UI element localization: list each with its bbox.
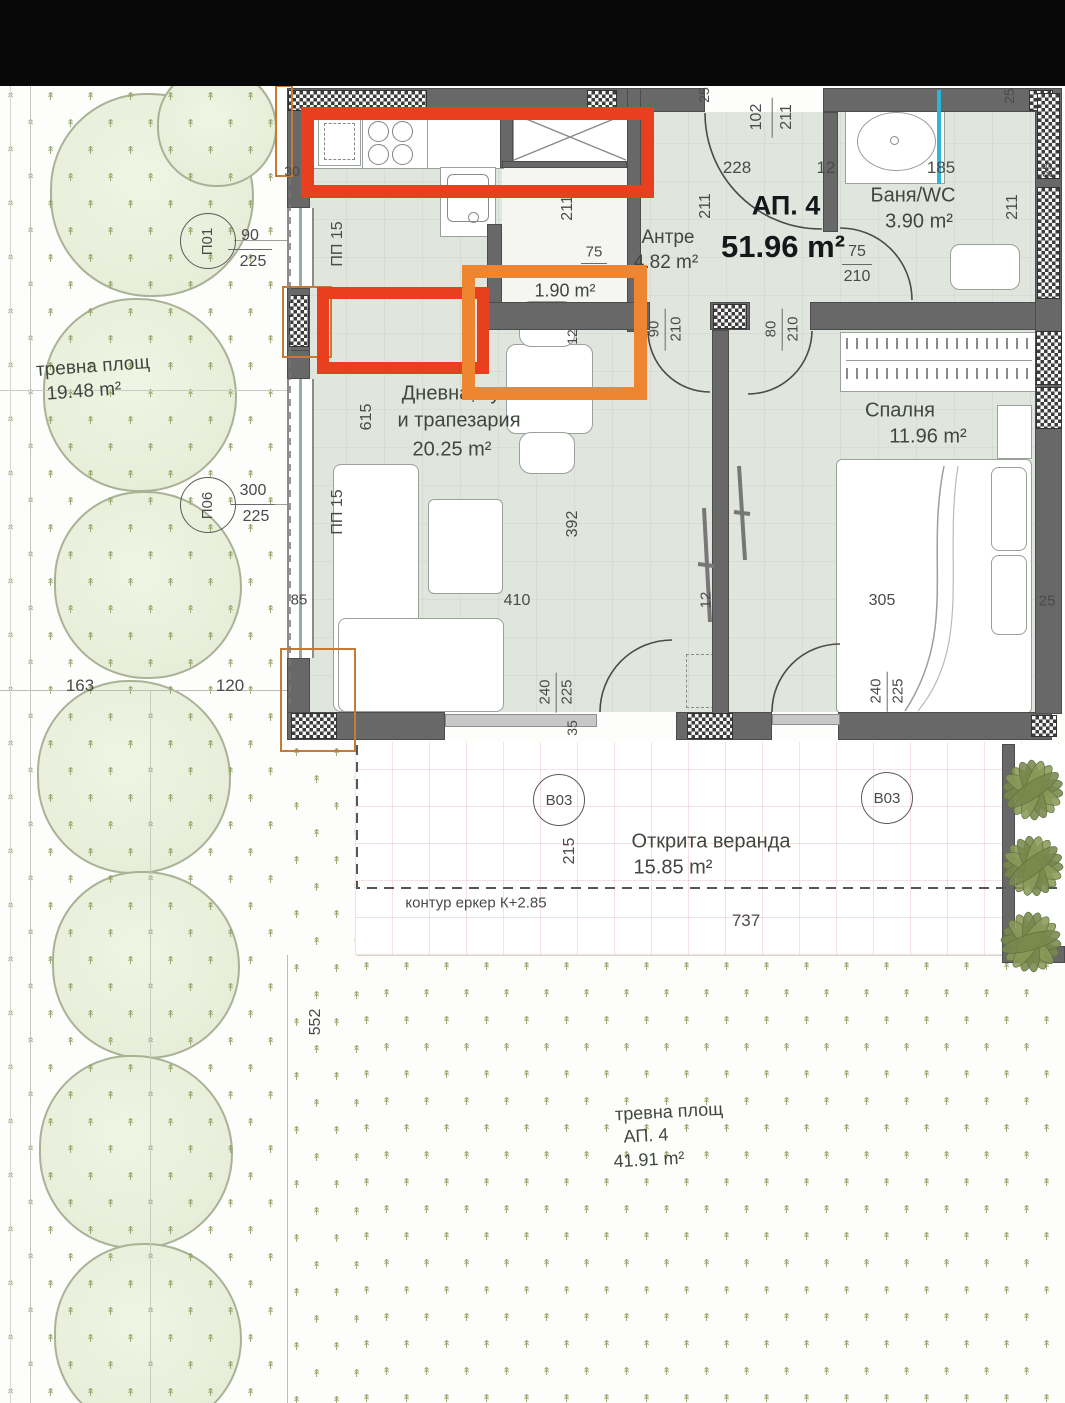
- tag-label: П06: [200, 491, 217, 518]
- dimension-label: 210: [785, 316, 802, 341]
- room-label: 41.91 m²: [613, 1148, 685, 1173]
- dimension-label: 25: [696, 87, 712, 103]
- dimension-label: 210: [844, 268, 871, 286]
- room-label: 15.85 m²: [634, 857, 713, 880]
- highlight-rect-red-kitchen: [301, 107, 654, 198]
- dimension-label: 211: [778, 104, 796, 130]
- door-arc-bedroom: [748, 331, 812, 394]
- dimension-label: контур еркер К+2.85: [405, 895, 546, 912]
- dimension-fraction-line: [842, 264, 872, 265]
- letterbox-top: [0, 0, 1065, 86]
- tag-label: В03: [874, 790, 901, 807]
- planter-plant-icon: [1000, 911, 1062, 973]
- room-label: 20.25 m²: [413, 439, 492, 462]
- planter-plant-icon: [1002, 759, 1064, 821]
- floor-plan-canvas: ↟↟↟↟↟↟↟↟↟↟↟↟↟↟↟↟↟↟↟↟↟↟↟↟↟↟↟↟↟↟↟↟↟↟↟↟↟↟↟↟…: [0, 0, 1065, 1403]
- dimension-label: 211: [559, 195, 577, 221]
- dimension-label: 305: [869, 592, 896, 610]
- door-arc-veranda-bedroom: [772, 644, 840, 712]
- tag-circle-П06: П06: [180, 477, 236, 533]
- dimension-label: 392: [564, 511, 582, 538]
- dimension-label: ПП 15: [329, 221, 347, 266]
- dimension-fraction-line: [228, 249, 272, 250]
- dimension-label: 25: [1001, 88, 1017, 104]
- dimension-label: 120: [216, 676, 244, 696]
- dimension-label: 102: [748, 104, 766, 131]
- room-label: Антре: [641, 227, 694, 249]
- dimension-label: 215: [561, 838, 579, 865]
- dimension-label: ПП 15: [329, 489, 347, 534]
- room-label: Открита веранда: [632, 831, 791, 854]
- dimension-label: 410: [504, 592, 531, 610]
- door-arc-veranda-living: [600, 640, 672, 712]
- dimension-fraction-line: [555, 673, 556, 713]
- dimension-label: 30: [284, 163, 300, 179]
- dimension-label: 240: [868, 678, 885, 703]
- dimension-label: 225: [559, 679, 576, 704]
- room-label: Спалня: [865, 400, 935, 423]
- dimension-label: 225: [890, 678, 907, 703]
- dimension-label: 35: [564, 720, 580, 736]
- tag-circle-В03: В03: [533, 774, 585, 826]
- dimension-label: 90: [646, 321, 663, 338]
- room-label: 11.96 m²: [889, 426, 966, 449]
- dimension-fraction-line: [781, 309, 782, 351]
- dimension-fraction-line: [771, 98, 772, 138]
- room-label: АП. 4: [623, 1124, 669, 1147]
- dimension-label: 25: [1039, 593, 1056, 610]
- dimension-label: 211: [1004, 194, 1022, 220]
- dimension-label: 228: [723, 158, 751, 178]
- dimension-label: 240: [537, 679, 554, 704]
- dimension-label: 552: [307, 1009, 325, 1036]
- dimension-label: 225: [240, 253, 267, 271]
- dimension-label: 737: [732, 911, 760, 931]
- dimension-label: 300: [240, 482, 267, 500]
- tag-label: В03: [546, 792, 573, 809]
- dimension-label: 163: [66, 676, 94, 696]
- dimension-fraction-line: [664, 309, 665, 351]
- tag-circle-В03: В03: [861, 772, 913, 824]
- bed-blanket-curve: [905, 466, 944, 711]
- room-label: 3.90 m²: [885, 211, 953, 234]
- highlight-rect-orange-storage: [462, 265, 647, 400]
- tv-panel-bedroom: [734, 466, 750, 560]
- dimension-label: 75: [848, 243, 866, 261]
- apartment-title-label: АП. 4: [752, 191, 821, 222]
- dimension-label: 185: [927, 158, 955, 178]
- room-label: и трапезария: [397, 410, 520, 433]
- dimension-label: 12: [698, 592, 715, 609]
- dimension-label: 12: [817, 158, 836, 178]
- apartment-title-label: 51.96 m²: [721, 229, 845, 265]
- room-label: Баня/WC: [871, 185, 956, 208]
- dimension-label: 211: [697, 193, 715, 219]
- dimension-label: 25: [1039, 162, 1055, 178]
- dimension-label: 615: [358, 404, 376, 431]
- dimension-fraction-line: [231, 504, 275, 505]
- dimension-label: 85: [291, 592, 308, 609]
- tag-circle-П01: П01: [180, 213, 236, 269]
- dimension-label: 75: [586, 244, 603, 261]
- dimension-label: 90: [241, 227, 259, 245]
- tag-label: П01: [200, 227, 217, 254]
- dimension-fraction-line: [886, 672, 887, 712]
- dimension-label: 225: [243, 508, 270, 526]
- dimension-label: 210: [668, 316, 685, 341]
- dimension-label: 80: [763, 321, 780, 338]
